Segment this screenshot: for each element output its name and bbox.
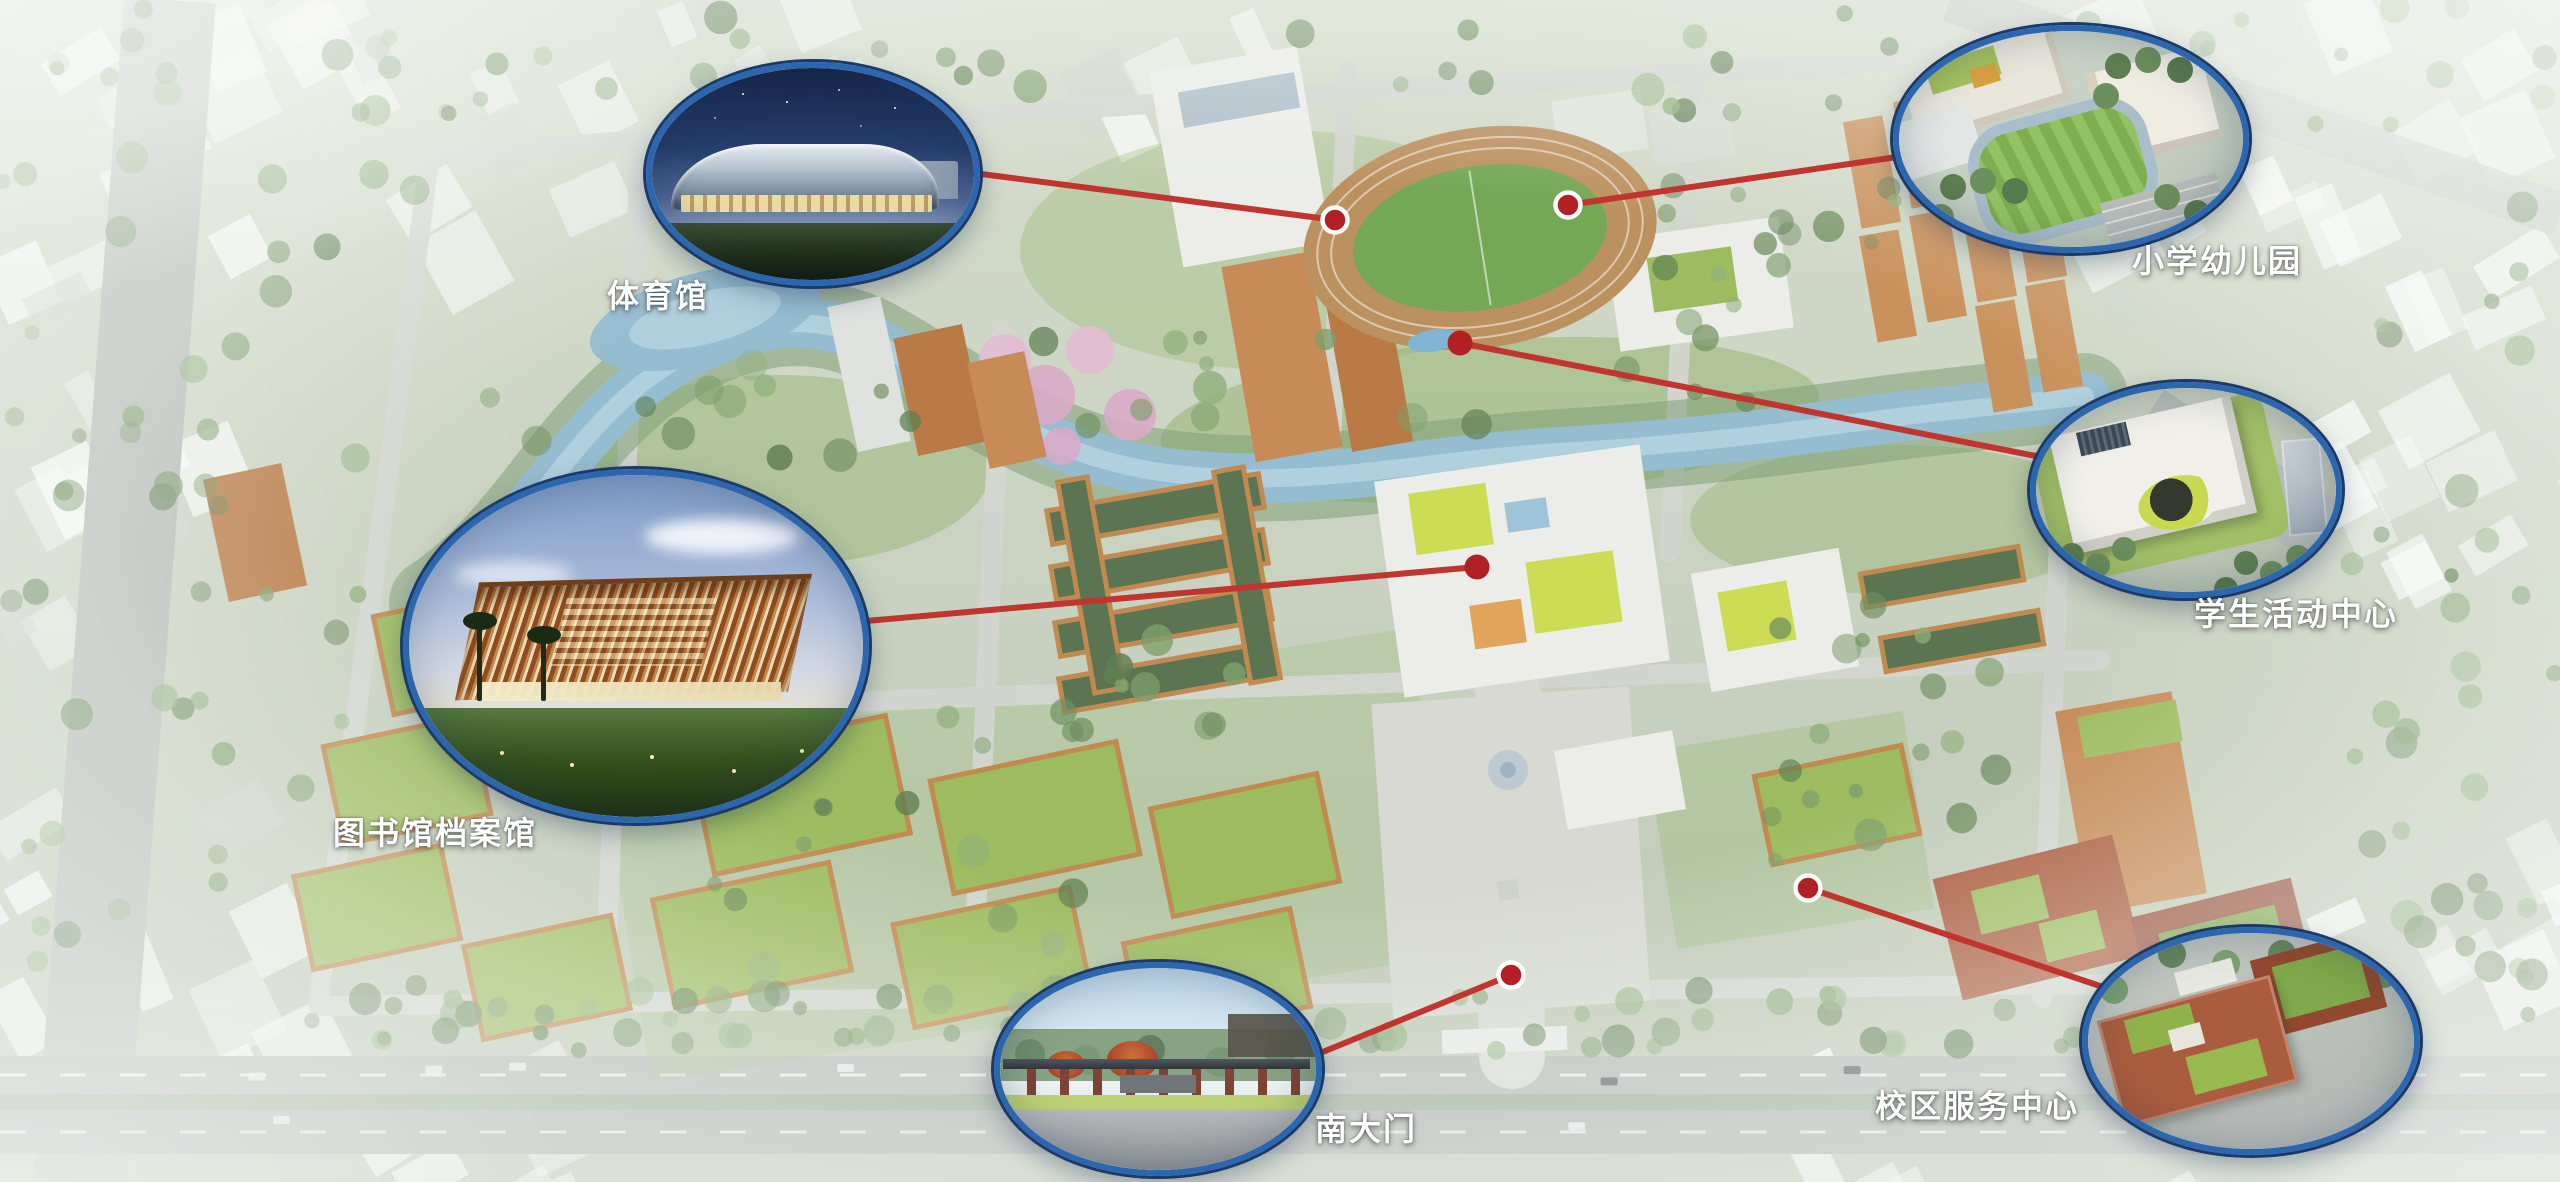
label-library-archives: 图书馆档案馆: [333, 817, 537, 849]
library-archives-photo: [409, 475, 863, 817]
label-gymnasium: 体育馆: [607, 280, 709, 312]
marker-south-gate: [1499, 963, 1524, 988]
connector-south-gate: [1308, 975, 1511, 1058]
marker-gymnasium: [1323, 208, 1348, 233]
label-south-gate: 南大门: [1315, 1113, 1417, 1145]
callout-south-gate: [994, 962, 1322, 1176]
callout-student-activity-center: [2030, 382, 2342, 598]
connector-student-activity-center: [1460, 343, 2036, 456]
connector-gymnasium: [966, 172, 1335, 220]
marker-student-activity-center: [1448, 331, 1473, 356]
callout-primary-school-kindergarten: [1893, 25, 2249, 253]
connector-library-archives: [855, 567, 1477, 622]
label-campus-service-center: 校区服务中心: [1875, 1090, 2079, 1122]
label-student-activity-center: 学生活动中心: [2194, 598, 2398, 630]
marker-library-archives: [1465, 555, 1490, 580]
campus-aerial-map: 体育馆 小学幼儿园 学生活动中心 图书馆档案馆 南大门 校区服务中心: [0, 0, 2560, 1182]
gymnasium-photo: [652, 68, 974, 280]
callout-gymnasium: [646, 62, 980, 286]
callout-campus-service-center: [2082, 927, 2420, 1155]
primary-school-photo: [1899, 31, 2243, 247]
connector-campus-service-center: [1808, 888, 2100, 986]
student-activity-center-photo: [2036, 388, 2336, 592]
marker-campus-service-center: [1796, 876, 1821, 901]
label-primary-school-kindergarten: 小学幼儿园: [2132, 245, 2302, 277]
marker-primary-school-kindergarten: [1556, 193, 1581, 218]
campus-service-center-photo: [2088, 933, 2414, 1149]
callout-library-archives: [403, 469, 869, 823]
connector-primary-school-kindergarten: [1568, 157, 1897, 205]
south-gate-photo: [1000, 968, 1316, 1170]
